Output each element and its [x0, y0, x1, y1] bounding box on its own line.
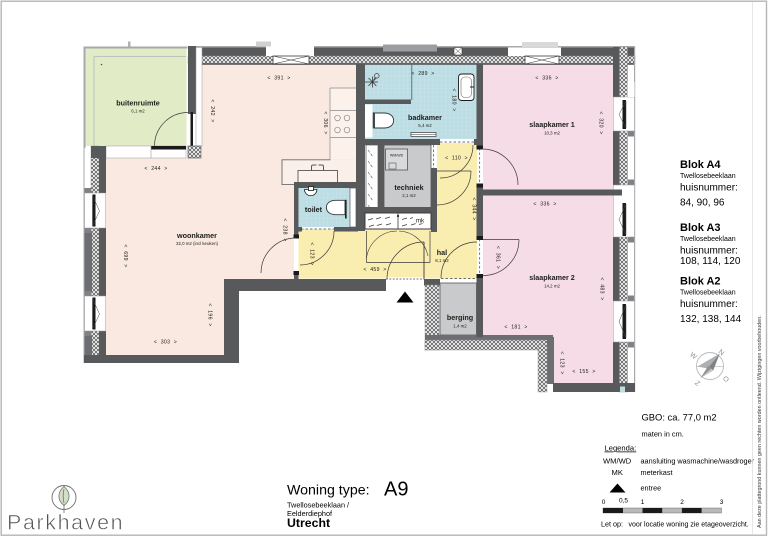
svg-text:< 699 >: < 699 >	[122, 244, 128, 267]
svg-text:2,1 m2: 2,1 m2	[402, 193, 416, 198]
svg-text:meterkast: meterkast	[641, 468, 673, 477]
svg-text:32,0 m2 (incl keuken): 32,0 m2 (incl keuken)	[176, 241, 219, 246]
svg-text:132, 138, 144: 132, 138, 144	[680, 314, 742, 325]
svg-text:< 238 >: < 238 >	[282, 218, 288, 241]
svg-text:6,1 m2: 6,1 m2	[131, 109, 145, 114]
svg-text:5,4 m2: 5,4 m2	[418, 123, 432, 128]
svg-text:buitenruimte: buitenruimte	[116, 99, 160, 108]
svg-text:< 483 >: < 483 >	[599, 277, 605, 300]
svg-text:10,3 m2: 10,3 m2	[544, 131, 560, 136]
svg-text:slaapkamer 2: slaapkamer 2	[529, 273, 575, 282]
svg-text:MK: MK	[612, 468, 623, 477]
svg-text:< 242 >: < 242 >	[209, 99, 215, 122]
svg-text:0: 0	[602, 499, 606, 506]
svg-text:Parkhaven: Parkhaven	[7, 511, 124, 535]
svg-text:GBO: ca. 77,0 m2: GBO: ca. 77,0 m2	[642, 412, 717, 423]
svg-text:108, 114, 120: 108, 114, 120	[680, 256, 741, 267]
svg-text:0,5: 0,5	[619, 498, 628, 505]
svg-text:< 244 >: < 244 >	[144, 166, 167, 172]
svg-text:huisnummer:: huisnummer:	[680, 299, 738, 310]
svg-text:< 306 >: < 306 >	[322, 111, 328, 134]
svg-text:< 361 >: < 361 >	[495, 246, 501, 269]
svg-text:1: 1	[641, 499, 645, 506]
svg-text:< 181 >: < 181 >	[504, 325, 527, 331]
svg-text:badkamer: badkamer	[408, 113, 442, 122]
svg-text:Utrecht: Utrecht	[287, 516, 330, 530]
svg-text:< 110 >: < 110 >	[445, 156, 468, 162]
svg-text:huisnummer:: huisnummer:	[680, 183, 738, 194]
svg-text:< 336 >: < 336 >	[535, 76, 558, 82]
svg-text:mk: mk	[416, 218, 425, 225]
svg-text:maten in cm.: maten in cm.	[642, 430, 684, 439]
svg-text:Blok A3: Blok A3	[680, 222, 721, 234]
svg-text:A9: A9	[384, 479, 408, 501]
svg-text:Legenda:: Legenda:	[605, 444, 637, 453]
svg-text:huisnummer:: huisnummer:	[680, 246, 738, 257]
svg-text:2: 2	[680, 499, 684, 506]
svg-text:Woning type:: Woning type:	[287, 483, 370, 499]
svg-text:Twellosebeeklaan: Twellosebeeklaan	[680, 290, 736, 297]
svg-text:< 344 >: < 344 >	[471, 197, 477, 220]
svg-text:< 180 >: < 180 >	[451, 88, 457, 111]
svg-text:Blok A2: Blok A2	[680, 276, 721, 288]
svg-text:aansluiting wasmachine/wasdrog: aansluiting wasmachine/wasdroger	[641, 457, 755, 466]
svg-text:techniek: techniek	[394, 183, 423, 192]
svg-text:Twellosebeeklaan: Twellosebeeklaan	[680, 173, 736, 180]
svg-text:84, 90, 96: 84, 90, 96	[680, 198, 725, 209]
svg-text:entree: entree	[641, 484, 662, 493]
svg-text:< 155 >: < 155 >	[572, 369, 595, 375]
svg-text:< 320 >: < 320 >	[598, 111, 604, 134]
svg-text:WM/WD: WM/WD	[603, 457, 632, 466]
svg-text:3: 3	[720, 499, 724, 506]
svg-text:< 391 >: < 391 >	[267, 76, 290, 82]
svg-text:voor locatie woning zie etageo: voor locatie woning zie etageoverzicht.	[629, 522, 749, 529]
svg-text:toilet: toilet	[305, 205, 323, 214]
svg-text:Aan deze plattegrond kunnen ge: Aan deze plattegrond kunnen geen rechten…	[757, 315, 763, 528]
svg-text:Blok A4: Blok A4	[680, 159, 721, 171]
svg-text:< 459 >: < 459 >	[363, 267, 386, 273]
svg-text:1,4 m2: 1,4 m2	[453, 324, 467, 329]
svg-text:< 196 >: < 196 >	[207, 303, 213, 326]
svg-text:berging: berging	[447, 313, 473, 322]
svg-text:14,2 m2: 14,2 m2	[544, 284, 560, 289]
svg-text:< 123 >: < 123 >	[309, 242, 315, 265]
svg-text:< 303 >: < 303 >	[154, 340, 177, 346]
svg-text:Twellosebeeklaan: Twellosebeeklaan	[680, 236, 736, 243]
svg-text:woonkamer: woonkamer	[176, 231, 217, 240]
svg-text:WM/WD: WM/WD	[390, 154, 404, 158]
svg-text:< 336 >: < 336 >	[533, 202, 556, 208]
svg-text:8,1 m2: 8,1 m2	[435, 258, 449, 263]
svg-text:< 289 >: < 289 >	[411, 71, 434, 77]
svg-text:slaapkamer 1: slaapkamer 1	[529, 120, 575, 129]
svg-text:Let op:: Let op:	[601, 520, 623, 529]
svg-text:< 123 >: < 123 >	[559, 351, 565, 374]
svg-text:hal: hal	[437, 248, 447, 257]
